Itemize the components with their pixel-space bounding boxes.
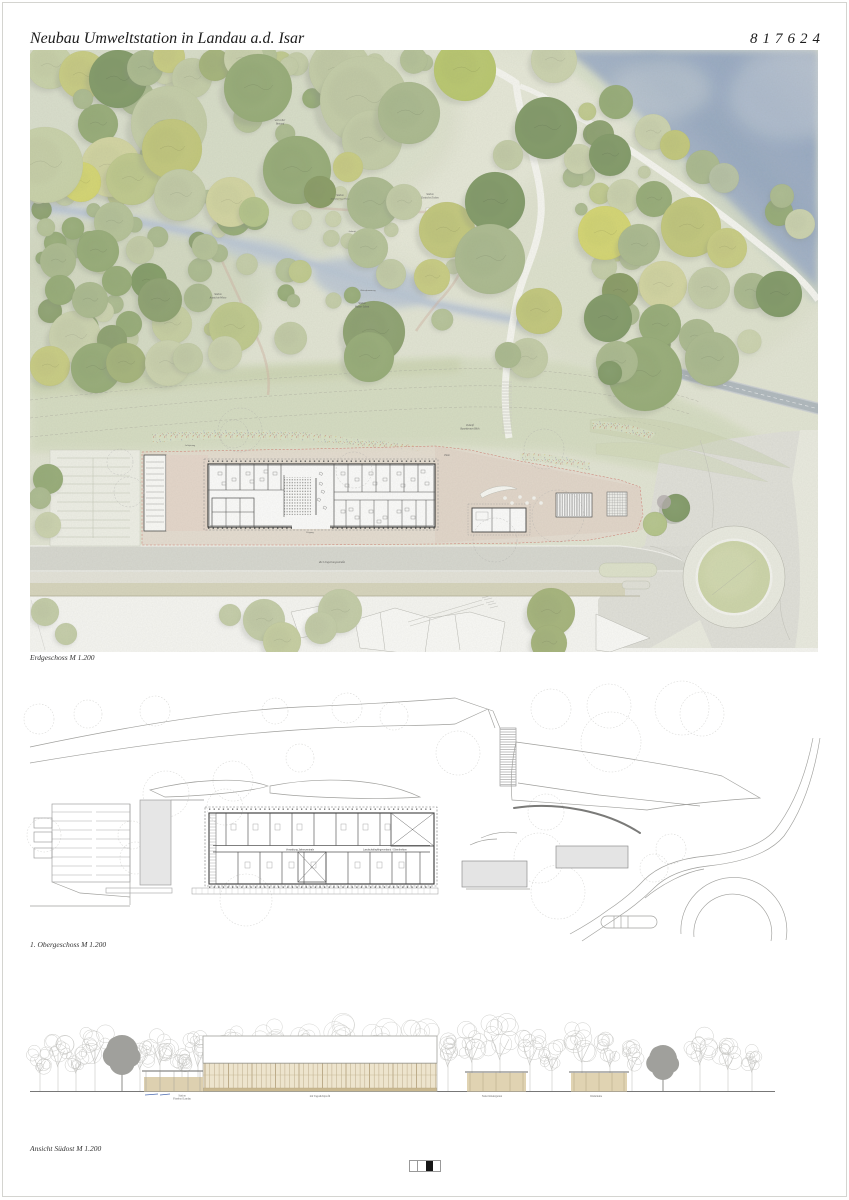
svg-text:Verwaltung Jahreszentrale: Verwaltung Jahreszentrale <box>286 849 315 852</box>
svg-text:mit Tageslichtprofil: mit Tageslichtprofil <box>310 1095 331 1098</box>
svg-text:Natur Kindergarten: Natur Kindergarten <box>482 1095 503 1098</box>
svg-text:Werkräume: Werkräume <box>590 1095 603 1098</box>
svg-text:Flussbad Landau: Flussbad Landau <box>173 1098 191 1101</box>
svg-text:Landschaftspflegeverband / Obe: Landschaftspflegeverband / Obenthekten <box>363 849 407 852</box>
